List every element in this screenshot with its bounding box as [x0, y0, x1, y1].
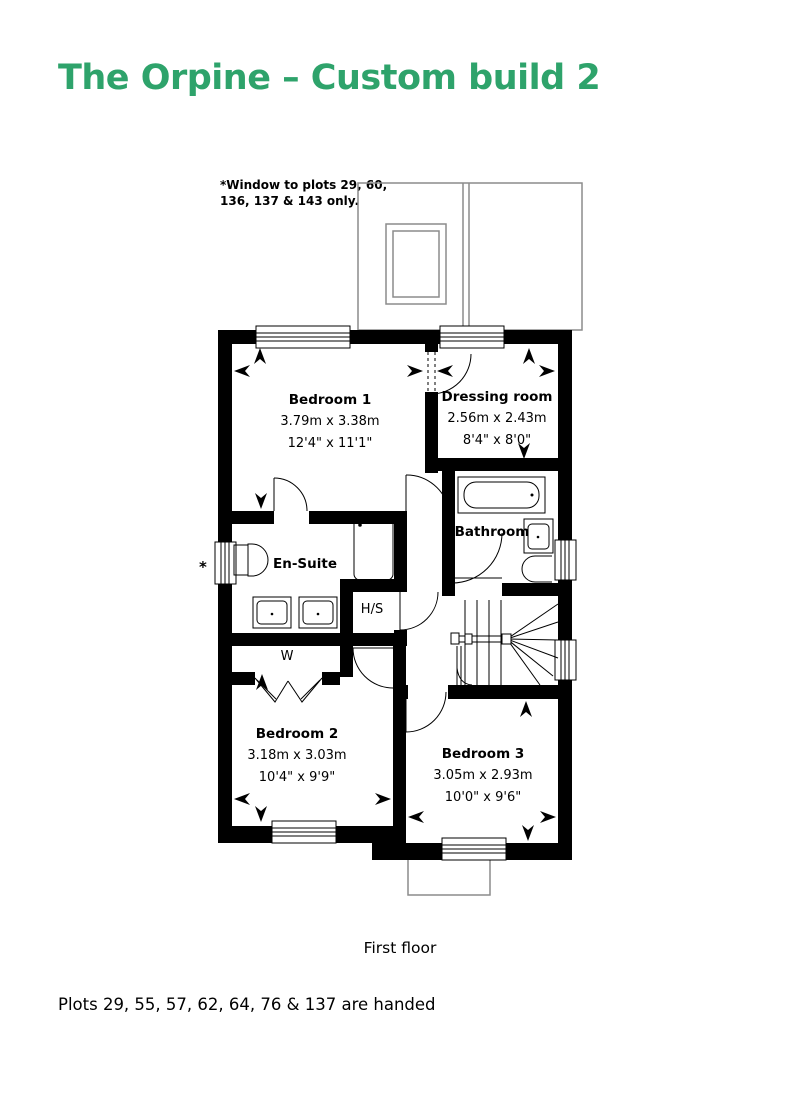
wall-left: [218, 330, 232, 843]
roof-structure: [358, 183, 582, 330]
arrow-bedroom1-right: [407, 365, 423, 377]
wall-bathroom-left: [442, 458, 455, 596]
room-label-dressing: Dressing room 2.56m x 2.43m 8'4" x 8'0": [442, 386, 553, 452]
stairs-handrail: [451, 633, 511, 644]
canopy-outline: [408, 860, 490, 895]
room-label-ensuite: En-Suite: [273, 553, 337, 575]
wall-bedroom3-top-b: [448, 685, 572, 699]
room-name-ensuite: En-Suite: [273, 553, 337, 575]
arrow-dressing-up: [523, 348, 535, 364]
floorplan-page: The Orpine – Custom build 2 *Window to p…: [0, 0, 800, 1100]
arrow-bedroom1-left: [234, 365, 250, 377]
handed-plots-note: Plots 29, 55, 57, 62, 64, 76 & 137 are h…: [58, 995, 436, 1014]
room-imperial-bedroom2: 10'4" x 9'9": [247, 767, 346, 789]
room-imperial-bedroom3: 10'0" x 9'6": [433, 787, 532, 809]
wall-bathroom-bottom-a: [442, 583, 452, 596]
arrow-bedroom1-up: [254, 348, 266, 364]
wall-hs-bottom: [353, 633, 407, 646]
floor-caption: First floor: [364, 939, 437, 957]
window-bathroom-right: [555, 540, 576, 580]
ensuite-sink-1: [253, 597, 291, 628]
room-metric-bedroom1: 3.79m x 3.38m: [280, 411, 379, 433]
wall-bed1-dressing-a: [425, 344, 438, 352]
room-label-wardrobe: W: [281, 649, 294, 665]
room-name-bathroom: Bathroom: [455, 521, 530, 543]
room-name-bedroom2: Bedroom 2: [247, 723, 346, 745]
window-dressing-top: [440, 326, 504, 348]
room-imperial-dressing: 8'4" x 8'0": [442, 430, 553, 452]
ensuite-toilet: [234, 544, 268, 576]
shower: [354, 518, 393, 580]
arrow-bedroom3-right: [540, 811, 556, 823]
arrow-bedroom1-down: [255, 493, 267, 509]
arrow-dressing-left: [437, 365, 453, 377]
room-name-bedroom1: Bedroom 1: [280, 389, 379, 411]
room-label-bathroom: Bathroom: [455, 521, 530, 543]
room-metric-dressing: 2.56m x 2.43m: [442, 408, 553, 430]
roof-outline: [358, 183, 582, 330]
room-label-bedroom1: Bedroom 1 3.79m x 3.38m 12'4" x 11'1": [280, 389, 379, 455]
window-left-starred: [215, 542, 236, 584]
wall-wardrobe-stub-left: [232, 672, 255, 685]
bath: [458, 477, 545, 513]
room-label-bedroom3: Bedroom 3 3.05m x 2.93m 10'0" x 9'6": [433, 743, 532, 809]
wall-ensuite-top-b: [309, 511, 404, 524]
door-hs: [400, 592, 438, 630]
arrow-bedroom2-right: [375, 793, 391, 805]
room-name-bedroom3: Bedroom 3: [433, 743, 532, 765]
window-bedroom1-top: [256, 326, 350, 348]
room-metric-bedroom3: 3.05m x 2.93m: [433, 765, 532, 787]
arrow-bedroom3-left: [408, 811, 424, 823]
room-name-dressing: Dressing room: [442, 386, 553, 408]
room-label-hs: H/S: [361, 602, 383, 618]
bathroom-toilet: [522, 556, 552, 582]
floorplan-drawing: [0, 0, 800, 1100]
wall-ensuite-top-a: [232, 511, 274, 524]
arrow-bedroom2-left: [234, 793, 250, 805]
wall-ensuite-bottom: [232, 633, 340, 646]
rooflight-window-outer: [386, 224, 446, 304]
ensuite-sink-2: [299, 597, 337, 628]
door-bedroom3: [406, 692, 446, 732]
arrow-bedroom3-up: [520, 701, 532, 717]
door-ensuite: [274, 478, 307, 511]
window-bedroom3-bottom: [442, 838, 506, 860]
rooflight-window-inner: [393, 231, 439, 297]
door-bedroom2: [353, 648, 393, 688]
room-label-bedroom2: Bedroom 2 3.18m x 3.03m 10'4" x 9'9": [247, 723, 346, 789]
arrow-bedroom2-down: [255, 806, 267, 822]
arrow-bedroom3-down: [522, 825, 534, 841]
room-imperial-bedroom1: 12'4" x 11'1": [280, 433, 379, 455]
wall-bathroom-bottom-b: [502, 583, 572, 596]
room-name-hs: H/S: [361, 602, 383, 618]
starred-window-asterisk: *: [199, 558, 207, 576]
room-name-wardrobe: W: [281, 649, 294, 665]
arrow-dressing-right: [539, 365, 555, 377]
wall-hs-left: [340, 579, 353, 677]
room-metric-bedroom2: 3.18m x 3.03m: [247, 745, 346, 767]
wall-wardrobe-stub-right: [322, 672, 340, 685]
window-stairs-right: [555, 640, 576, 680]
door-wardrobe-bifold: [255, 678, 322, 702]
wall-bedroom2-divider: [393, 646, 406, 829]
window-bedroom2-bottom: [272, 821, 336, 843]
stairs: [451, 600, 558, 685]
